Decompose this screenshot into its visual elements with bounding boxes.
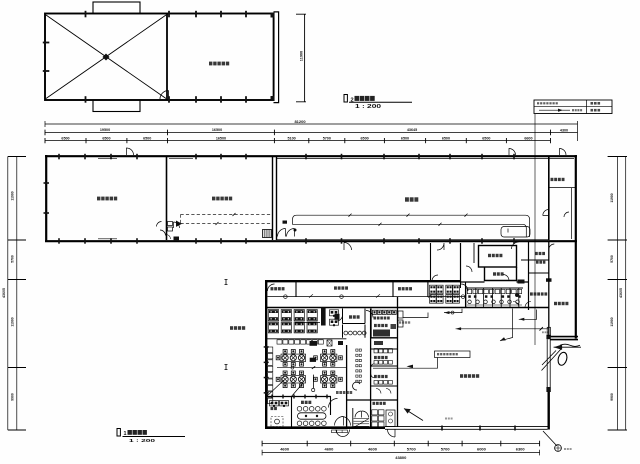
svg-text:4300: 4300	[560, 128, 568, 132]
svg-text:9900: 9900	[11, 393, 15, 401]
svg-text:5700: 5700	[610, 255, 614, 263]
svg-text:6500: 6500	[102, 136, 110, 140]
svg-text:9900: 9900	[610, 393, 614, 401]
svg-text:6500: 6500	[61, 136, 69, 140]
svg-text:16500: 16500	[212, 128, 222, 132]
svg-text:43800: 43800	[395, 455, 407, 460]
svg-text:11900: 11900	[610, 317, 614, 326]
svg-text:6500: 6500	[442, 136, 450, 140]
svg-text:5100: 5100	[287, 136, 295, 140]
svg-text:4600: 4600	[280, 447, 290, 452]
svg-text:43605: 43605	[619, 288, 623, 298]
svg-text:4600: 4600	[368, 447, 378, 452]
svg-text:6500: 6500	[401, 136, 409, 140]
svg-text:11900: 11900	[300, 51, 304, 61]
svg-text:6500: 6500	[482, 136, 490, 140]
svg-text:19500: 19500	[100, 128, 110, 132]
svg-text:5700: 5700	[323, 136, 331, 140]
svg-text:5700: 5700	[11, 255, 15, 263]
svg-text:16500: 16500	[216, 136, 226, 140]
svg-text:6600: 6600	[524, 136, 532, 140]
svg-text:43645: 43645	[407, 128, 417, 132]
svg-text:6300: 6300	[516, 447, 526, 452]
svg-text:11900: 11900	[610, 193, 614, 202]
svg-text:6500: 6500	[360, 136, 368, 140]
svg-text:1 : 200: 1 : 200	[355, 104, 381, 110]
svg-text:11900: 11900	[11, 317, 15, 326]
svg-text:43605: 43605	[2, 288, 6, 298]
svg-text:6000: 6000	[477, 447, 487, 452]
svg-text:11900: 11900	[11, 191, 15, 200]
svg-text:6500: 6500	[143, 136, 151, 140]
svg-text:5700: 5700	[407, 447, 417, 452]
svg-text:5700: 5700	[441, 447, 451, 452]
svg-text:81200: 81200	[294, 119, 306, 124]
svg-text:4600: 4600	[324, 447, 334, 452]
svg-text:1 : 200: 1 : 200	[129, 438, 156, 444]
